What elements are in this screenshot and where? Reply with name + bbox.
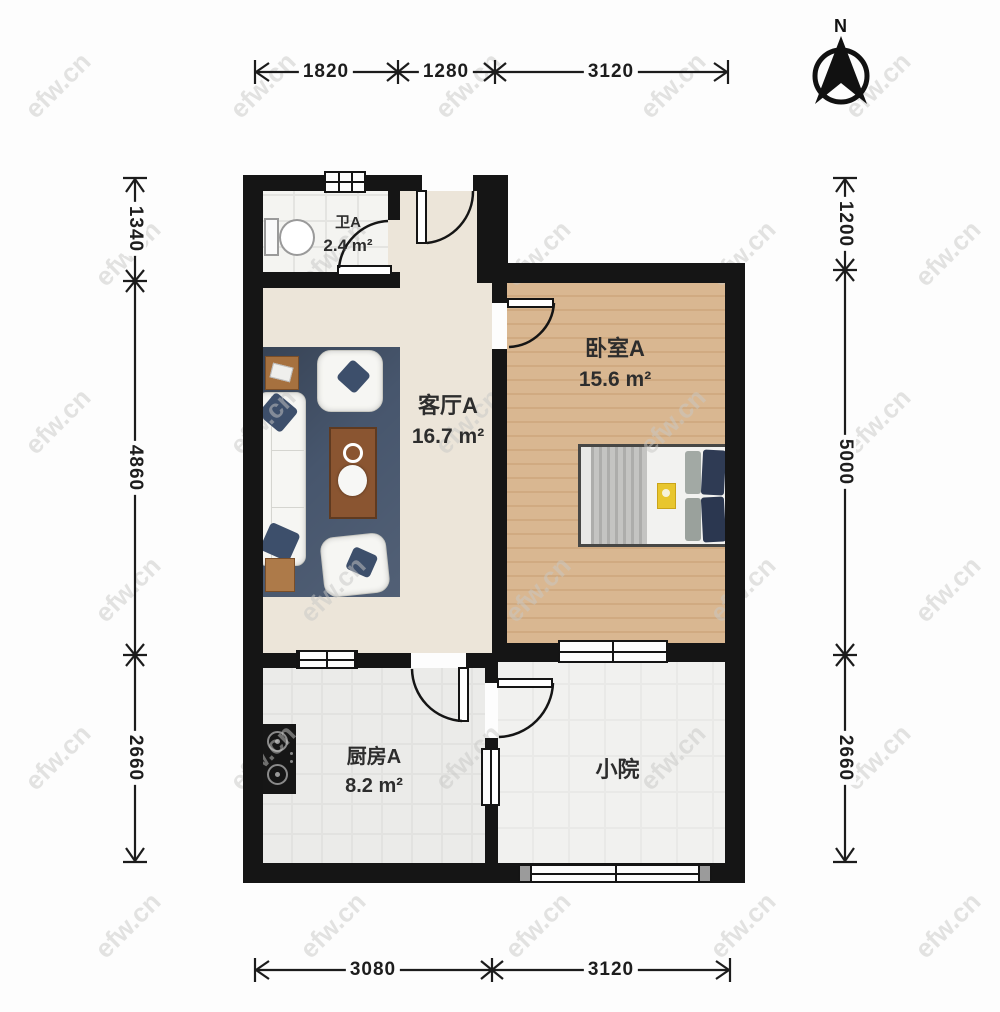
dim-top-1: 1820: [299, 61, 353, 83]
kitchen-area: 8.2 m²: [320, 772, 428, 801]
entrance-door: [416, 190, 427, 244]
dim-left-2: 4860: [124, 441, 146, 495]
bathroom-area: 2.4 m²: [300, 234, 396, 259]
bathroom-name: 卫A: [300, 212, 396, 234]
kitchen-door: [458, 667, 469, 722]
bedroom-south-window: [558, 640, 668, 663]
bathroom-label: 卫A 2.4 m²: [300, 212, 396, 258]
bathroom-door: [337, 265, 392, 276]
watermark: efw.cn: [294, 886, 372, 964]
watermark: efw.cn: [634, 46, 712, 124]
bedroom-area: 15.6 m²: [559, 365, 671, 395]
bedroom-label: 卧室A 15.6 m²: [559, 333, 671, 395]
bedroom-name: 卧室A: [559, 333, 671, 365]
watermark: efw.cn: [224, 46, 302, 124]
fence-post: [698, 864, 712, 883]
dim-right-3: 2660: [834, 731, 856, 785]
living-room-label: 客厅A 16.7 m²: [393, 390, 503, 452]
dim-top-3: 3120: [584, 61, 638, 83]
watermark: efw.cn: [909, 886, 987, 964]
living-room-name: 客厅A: [393, 390, 503, 422]
dim-left-1: 1340: [124, 202, 146, 256]
watermark: efw.cn: [89, 886, 167, 964]
watermark: efw.cn: [294, 550, 372, 628]
kitchen-name: 厨房A: [320, 743, 428, 772]
dim-right-2: 5000: [834, 435, 856, 489]
watermark: efw.cn: [909, 550, 987, 628]
bathroom-window: [324, 171, 366, 193]
kitchen-window: [296, 650, 358, 669]
fence-post: [518, 864, 532, 883]
kitchen-label: 厨房A 8.2 m²: [320, 743, 428, 801]
courtyard-west-window: [481, 748, 500, 806]
watermark: efw.cn: [19, 382, 97, 460]
wall-living-bedroom-a: [492, 263, 507, 303]
watermark: efw.cn: [499, 886, 577, 964]
dim-left-3: 2660: [124, 731, 146, 785]
living-room-area: 16.7 m²: [393, 422, 503, 452]
watermark: efw.cn: [89, 550, 167, 628]
dim-top-2: 1280: [419, 61, 473, 83]
courtyard-label: 小院: [570, 754, 665, 786]
courtyard-door: [497, 678, 553, 688]
north-label: N: [834, 16, 847, 37]
watermark: efw.cn: [429, 46, 507, 124]
watermark: efw.cn: [499, 550, 577, 628]
floor-plan: efw.cnefw.cnefw.cnefw.cnefw.cnefw.cnefw.…: [0, 0, 1000, 1012]
watermark: efw.cn: [839, 46, 917, 124]
dim-bottom-2: 3120: [584, 959, 638, 981]
courtyard-fence-window: [518, 864, 712, 883]
watermark: efw.cn: [909, 214, 987, 292]
dim-bottom-1: 3080: [346, 959, 400, 981]
wall-right: [725, 263, 745, 883]
courtyard-name: 小院: [570, 754, 665, 786]
watermark: efw.cn: [704, 886, 782, 964]
watermark: efw.cn: [19, 718, 97, 796]
wall-bedroom-top: [477, 263, 745, 283]
watermark: efw.cn: [19, 46, 97, 124]
dim-right-1: 1200: [834, 197, 856, 251]
bedroom-door: [507, 298, 554, 308]
